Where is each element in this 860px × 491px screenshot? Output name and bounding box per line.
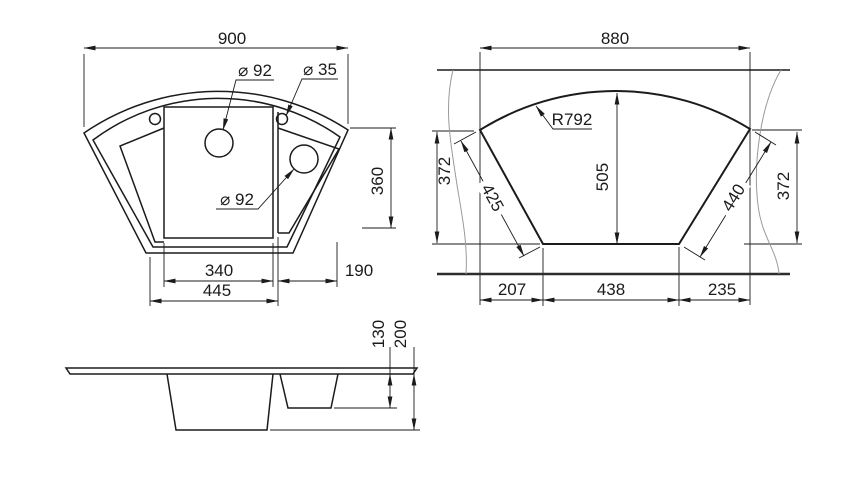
- leader-arc-radius-label: R792: [552, 110, 593, 129]
- top-view: 900 ⌀ 92 ⌀ 35 ⌀ 92 360: [84, 29, 396, 306]
- sink-drawing: 900 ⌀ 92 ⌀ 35 ⌀ 92 360: [0, 0, 860, 491]
- cutout-outline: [480, 91, 750, 244]
- dim-small-bowl-depth: 130: [369, 320, 390, 408]
- dim-bottom-left-offset-label: 207: [498, 280, 526, 299]
- large-bowl-profile: [167, 374, 273, 430]
- dim-overall-width-label: 900: [218, 29, 246, 48]
- dim-right-height-label: 372: [774, 172, 793, 200]
- dim-base-width-label: 445: [203, 281, 231, 300]
- dim-bottom-right-offset: 235: [679, 280, 750, 300]
- dim-right-height: 372: [774, 132, 797, 243]
- dim-bottom-left-offset: 207: [480, 280, 543, 300]
- side-view: 130 200: [66, 320, 420, 430]
- small-bowl-profile: [280, 374, 338, 408]
- dim-main-bowl-width-label: 340: [205, 261, 233, 280]
- dim-bottom-right-offset-label: 235: [708, 280, 736, 299]
- small-bowl-drain-hole: [290, 145, 318, 173]
- dim-center-height-label: 505: [593, 163, 612, 191]
- dim-right-edge: 440: [684, 132, 776, 260]
- leader-small-bowl-drain: ⌀ 92: [216, 169, 294, 209]
- leader-arc-radius: R792: [536, 106, 592, 129]
- cutout-view: 880 R792 505 372 372: [432, 29, 802, 306]
- leader-tap-hole-label: ⌀ 35: [303, 60, 337, 79]
- leader-tap-hole: ⌀ 35: [286, 60, 338, 116]
- technical-drawing-sheet: 900 ⌀ 92 ⌀ 35 ⌀ 92 360: [0, 0, 860, 491]
- dim-right-depth-label: 360: [368, 167, 387, 195]
- dim-right-depth: 360: [350, 128, 396, 228]
- dim-cutout-width-label: 880: [601, 29, 629, 48]
- leader-small-bowl-drain-label: ⌀ 92: [220, 190, 254, 209]
- dim-right-wing-width: 190: [278, 242, 373, 287]
- dim-small-bowl-depth-label: 130: [369, 320, 388, 348]
- left-wing-outline: [120, 128, 164, 242]
- tap-hole-left: [150, 114, 161, 125]
- dim-left-height-label: 372: [435, 157, 454, 185]
- dim-cutout-width: 880: [480, 29, 750, 48]
- dim-bottom-width: 438: [543, 280, 679, 300]
- leader-main-drain-label: ⌀ 92: [238, 61, 272, 80]
- dim-large-bowl-depth-label: 200: [391, 320, 410, 348]
- dim-right-wing-width-label: 190: [345, 261, 373, 280]
- main-drain-hole: [205, 129, 233, 157]
- dim-large-bowl-depth: 200: [391, 320, 414, 430]
- dim-center-height: 505: [593, 93, 617, 244]
- sink-slab: [66, 368, 417, 374]
- dim-bottom-width-label: 438: [597, 280, 625, 299]
- main-bowl: [164, 107, 273, 238]
- dim-left-edge: 425: [454, 132, 540, 258]
